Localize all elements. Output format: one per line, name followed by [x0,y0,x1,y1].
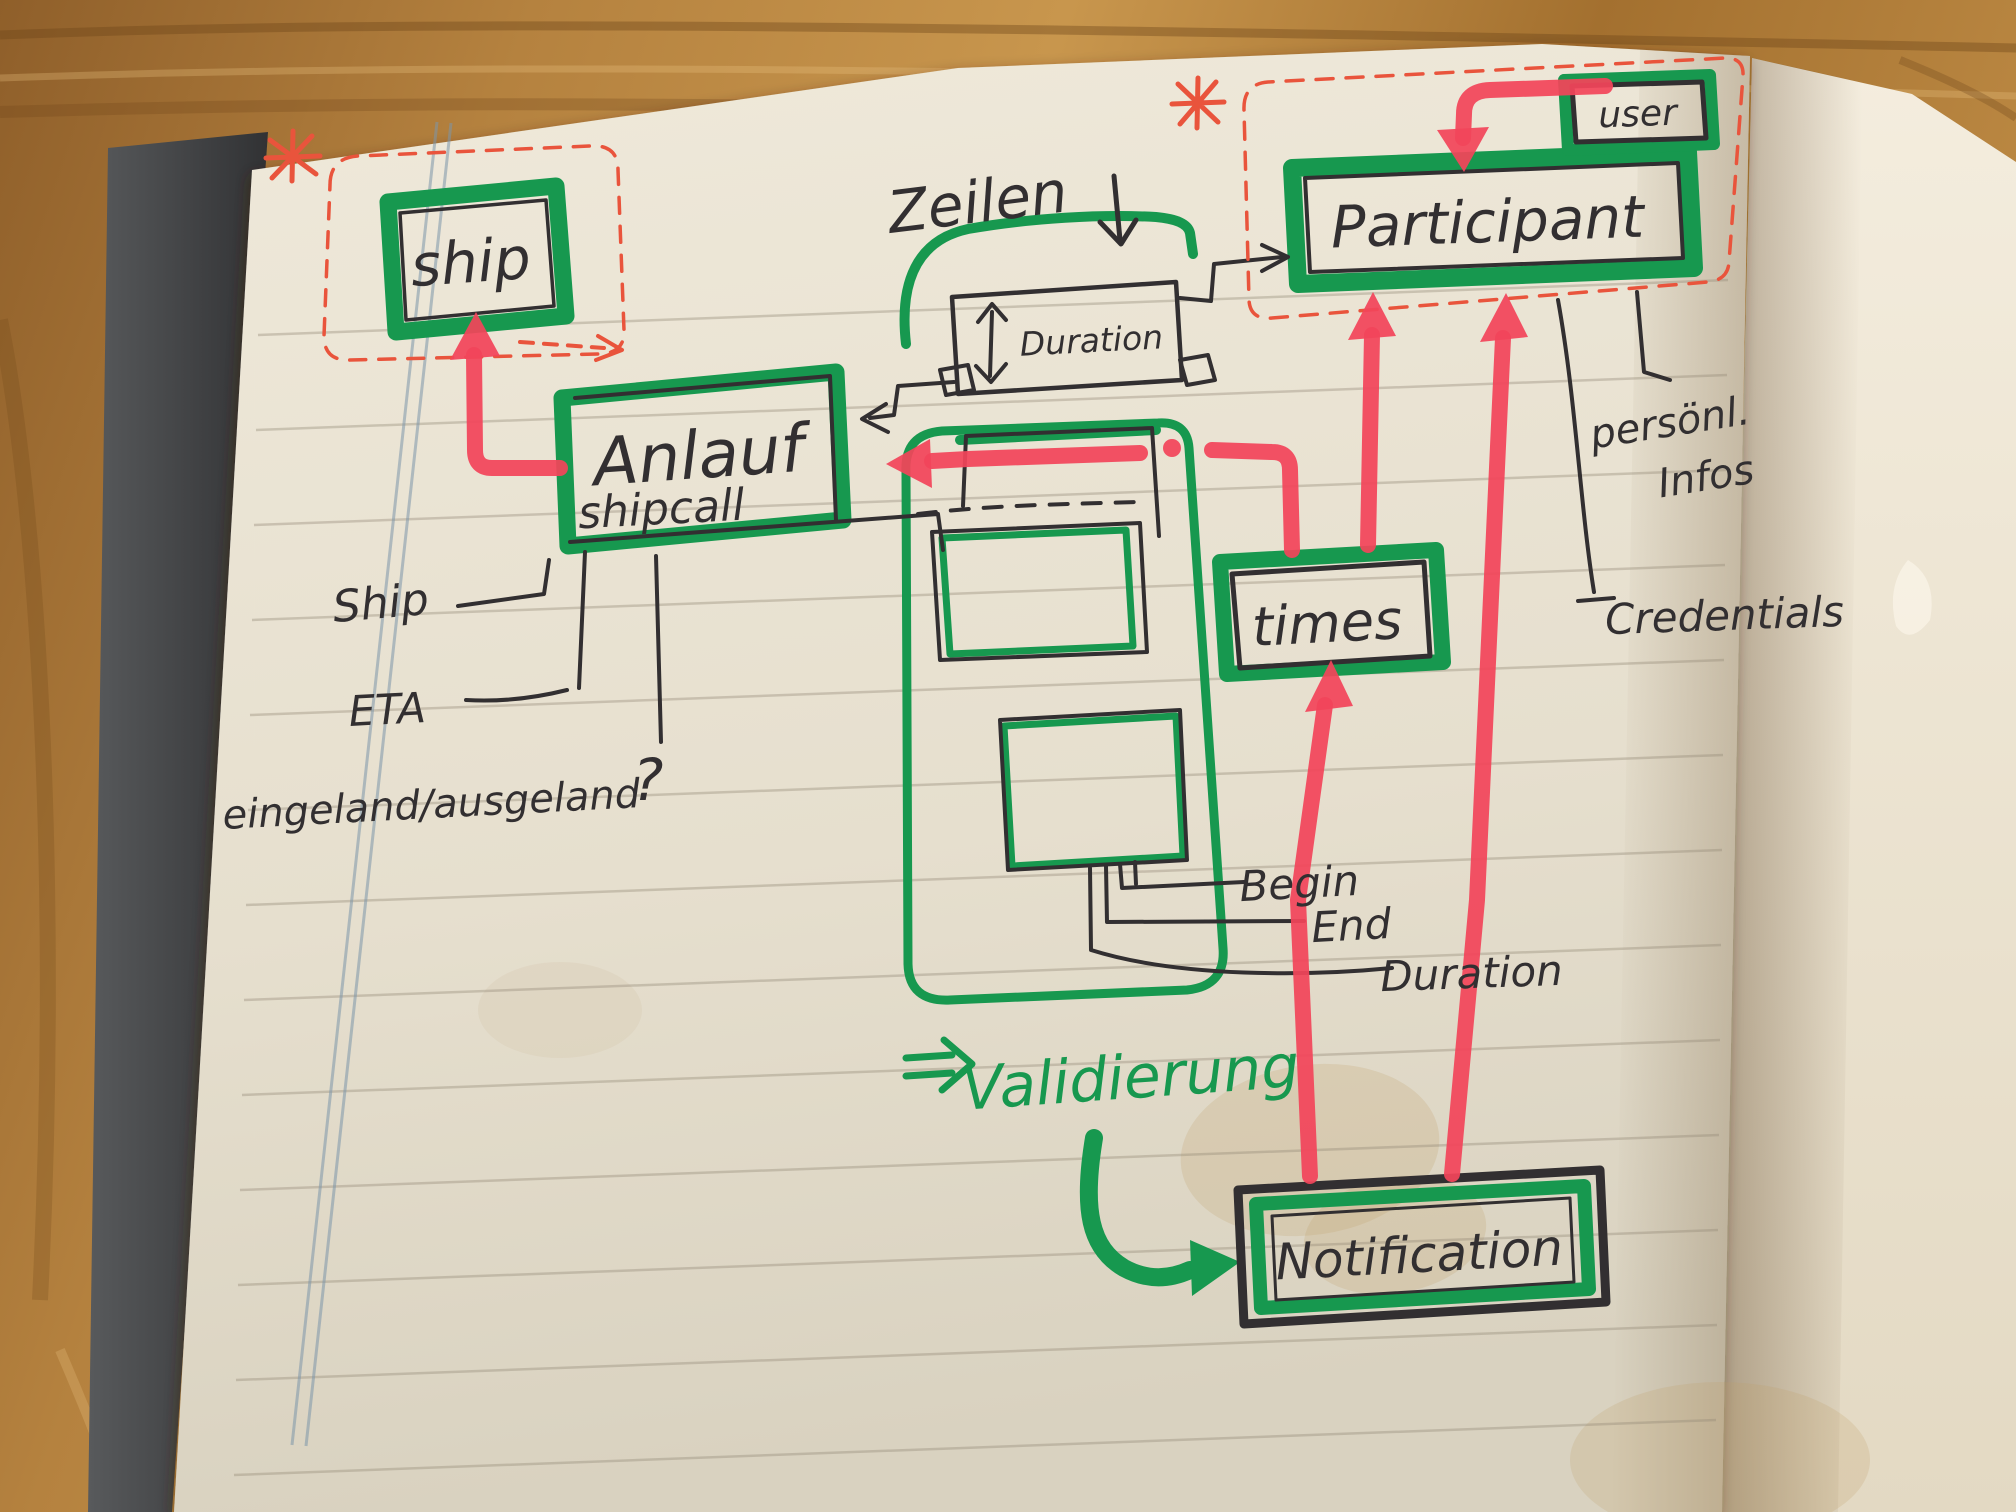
facing-page [1716,58,2016,1512]
shipcall-box-label: shipcall [577,480,747,540]
updown-arrow-icon [990,312,992,376]
paper-smudge [478,962,642,1058]
credentials-label: Credentials [1604,587,1845,644]
ship-box-label: ship [408,224,532,300]
times-box-label: times [1250,588,1403,659]
question-mark-label: ? [633,746,664,814]
participant-box-label: Participant [1330,182,1648,261]
red-dot [1163,439,1181,457]
eta-attr-label: ETA [347,683,427,736]
sketch-canvas: Zeilen ship Participant user Duration An… [0,0,2016,1512]
end-attr-label: End [1310,899,1393,952]
bracket-stub [1135,862,1136,884]
required-asterisk-icon [1172,78,1224,128]
notebook-photo: Zeilen ship Participant user Duration An… [0,0,2016,1512]
ship-attr-label: Ship [331,574,431,633]
duration-attr-label: Duration [1379,946,1563,1001]
user-box-label: user [1598,93,1680,137]
duration-box-label: Duration [1019,317,1164,363]
